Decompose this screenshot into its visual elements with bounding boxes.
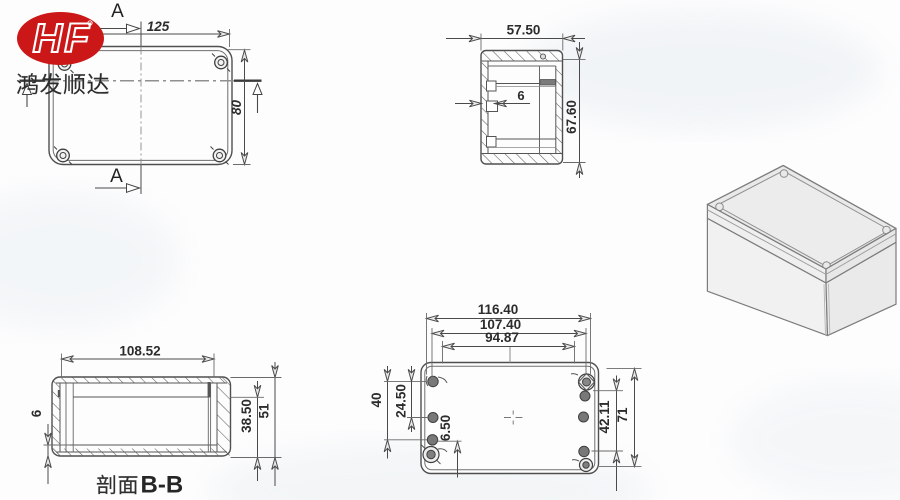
svg-text:51: 51 <box>257 403 272 419</box>
svg-text:40: 40 <box>369 392 384 407</box>
svg-text:125: 125 <box>147 19 170 34</box>
svg-text:67.60: 67.60 <box>564 100 579 134</box>
svg-text:71: 71 <box>615 407 630 423</box>
svg-text:108.52: 108.52 <box>119 344 160 359</box>
svg-text:24.50: 24.50 <box>394 384 409 418</box>
svg-text:42.11: 42.11 <box>597 400 612 434</box>
svg-text:6: 6 <box>29 409 44 417</box>
svg-text:A: A <box>111 1 124 22</box>
svg-text:HF: HF <box>33 15 92 61</box>
svg-text:80: 80 <box>229 100 244 116</box>
svg-text:A: A <box>110 166 123 187</box>
svg-text:57.50: 57.50 <box>507 23 541 38</box>
svg-text:116.40: 116.40 <box>478 302 519 317</box>
svg-text:B-B: B-B <box>141 472 184 499</box>
svg-text:94.87: 94.87 <box>485 330 519 345</box>
svg-text:38.50: 38.50 <box>239 399 254 433</box>
svg-text:6.50: 6.50 <box>438 415 453 441</box>
svg-text:6: 6 <box>517 88 524 103</box>
